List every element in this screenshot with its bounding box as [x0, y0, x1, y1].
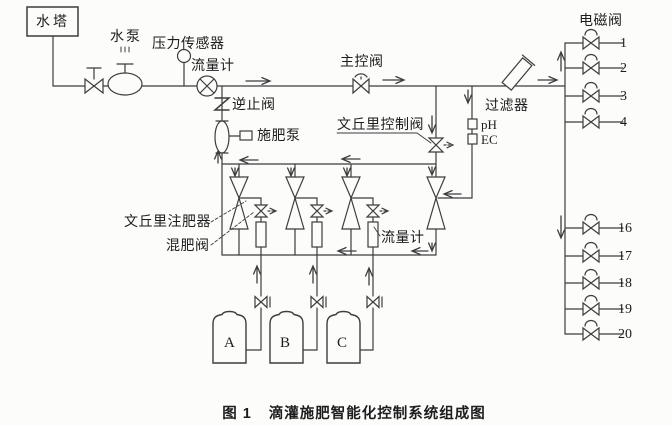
mixing-valve-2: [311, 205, 332, 217]
pump-base-mark: [121, 47, 129, 52]
valve-number-4: 4: [620, 115, 627, 130]
valve-number-2: 2: [620, 61, 627, 76]
caption-title: 滴灌施肥智能化控制系统组成图: [269, 406, 486, 422]
fertilizer-flowmeter-2: [312, 222, 322, 247]
solenoid-valve-1: [565, 30, 623, 50]
diagram-canvas: [0, 0, 672, 425]
ec-sensor-box: [468, 134, 477, 144]
tank-b-label: B: [280, 335, 290, 352]
tank-b-valve: [311, 297, 326, 308]
caption-prefix: 图 1: [222, 406, 252, 422]
solenoid-valve-17: [565, 243, 623, 263]
solenoid-valve-3: [565, 83, 623, 103]
solenoid-valve-2: [565, 55, 623, 75]
venturi-injector-3: [342, 177, 360, 229]
fertilizer-flowmeter-1: [256, 222, 266, 247]
fertilizer-pump-label: 施肥泵: [257, 128, 301, 143]
figure-caption: 图 1 滴灌施肥智能化控制系统组成图: [0, 402, 672, 423]
water-tower-label: 水塔: [36, 14, 70, 29]
main-control-valve-label: 主控阀: [340, 54, 384, 69]
venturi-injector-label: 文丘里注肥器: [124, 214, 211, 229]
figure-1-diagram: 水塔 水泵 压力传感器 流量计 逆止阀 施肥泵 主控阀 电磁阀 过滤器 文丘里控…: [0, 0, 672, 425]
main-control-valve-symbol: [353, 74, 369, 93]
tank-c-label: C: [337, 335, 347, 352]
ph-label: pH: [481, 118, 497, 132]
venturi-injector-1: [230, 177, 248, 229]
pressure-sensor-symbol: [178, 50, 191, 63]
solenoid-valve-4: [565, 109, 623, 129]
venturi-control-valve-label: 文丘里控制阀: [337, 117, 424, 132]
solenoid-valve-18: [565, 270, 623, 290]
venturi-control-valve-symbol: [429, 138, 453, 152]
flowmeter-main-label: 流量计: [191, 58, 235, 73]
venturi-injector-2: [286, 177, 304, 229]
tank-a-label: A: [224, 335, 235, 352]
valve-number-17: 17: [618, 249, 632, 264]
check-valve-label: 逆止阀: [232, 97, 276, 112]
valve-number-3: 3: [620, 89, 627, 104]
valve-number-19: 19: [618, 302, 632, 317]
water-pump-symbol: [108, 47, 142, 95]
filter-label: 过滤器: [485, 98, 529, 113]
water-pump-label: 水泵: [110, 29, 142, 44]
ph-sensor-box: [468, 119, 477, 129]
pipe-venturi-stubs: [239, 164, 351, 177]
ec-label: EC: [481, 133, 498, 147]
valve-number-20: 20: [618, 327, 632, 342]
inlet-gate-valve: [85, 68, 103, 93]
fertilizer-pump-symbol: [215, 121, 252, 153]
flowmeter-mid-label: 流量计: [381, 230, 425, 245]
solenoid-valve-16: [565, 215, 623, 235]
fertilizer-flowmeter-3: [368, 222, 378, 247]
pressure-sensor-label: 压力传感器: [152, 36, 225, 51]
mixing-valve-label: 混肥阀: [166, 238, 210, 253]
mixing-valve-3: [367, 205, 388, 217]
mixing-valve-1: [255, 205, 276, 217]
solenoid-valve-label: 电磁阀: [579, 13, 623, 28]
tank-a-valve: [255, 297, 270, 308]
solenoid-valve-20: [565, 321, 623, 341]
solenoid-valve-19: [565, 296, 623, 316]
tank-c-valve: [367, 297, 382, 308]
valve-number-18: 18: [618, 276, 632, 291]
venturi-injector-main: [427, 177, 445, 229]
leader-venturi-control-valve: [337, 133, 431, 143]
valve-number-16: 16: [618, 221, 632, 236]
main-flowmeter-symbol: [197, 76, 217, 96]
valve-number-1: 1: [620, 36, 627, 51]
